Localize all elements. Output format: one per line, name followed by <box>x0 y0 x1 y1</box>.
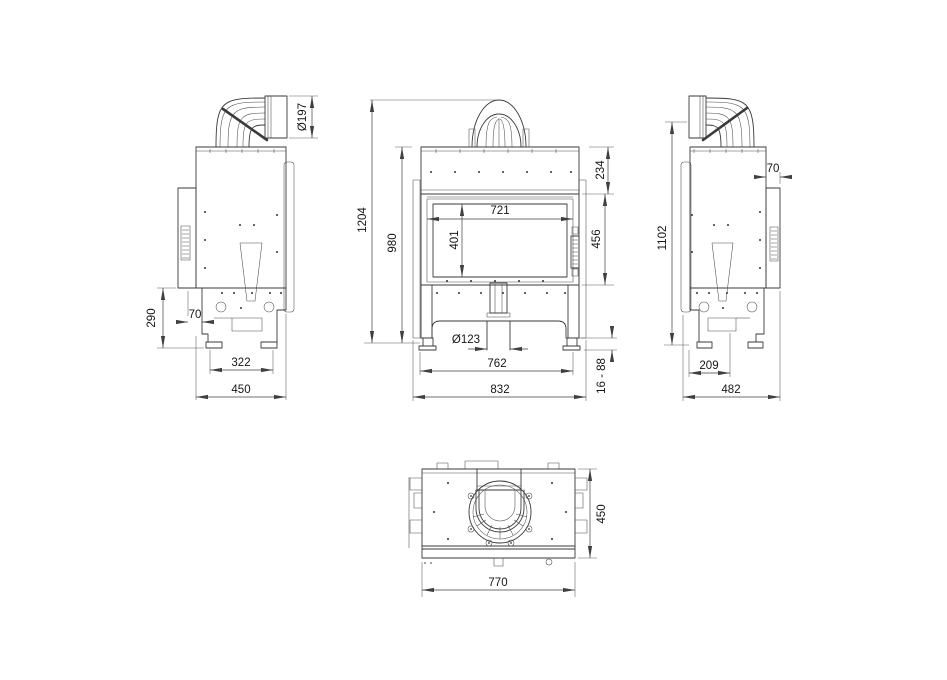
body-side <box>196 147 286 288</box>
screws <box>204 211 282 309</box>
dim-overall-width: 832 <box>490 384 509 396</box>
dim-foot-offset: 209 <box>699 360 718 372</box>
damper-handle <box>494 558 503 566</box>
flue-flange-top <box>468 469 532 546</box>
bolt-hole <box>216 302 226 312</box>
dim-feet-spacing: 322 <box>231 357 250 369</box>
side-view-left: Ø197 290 70 322 450 <box>146 96 318 400</box>
bolt-hole <box>699 302 709 312</box>
knob <box>546 559 552 565</box>
top-tab <box>548 463 559 469</box>
foot <box>206 342 222 348</box>
flue-elbow-right <box>689 96 754 147</box>
flue-flange <box>689 96 706 138</box>
grille <box>770 227 778 261</box>
intake-channel <box>487 321 510 350</box>
top-tab <box>465 461 498 469</box>
front-view: 1204 980 234 456 721 401 Ø123 762 832 16… <box>357 100 617 401</box>
foot <box>697 342 712 348</box>
screws <box>691 211 761 309</box>
ash-drawer <box>708 318 736 331</box>
dim-feet-range: 16 - 88 <box>596 358 608 394</box>
dim-panel-offset-right: 70 <box>767 163 780 175</box>
flue-flange <box>265 96 287 138</box>
technical-drawing: Ø197 290 70 322 450 <box>0 0 947 680</box>
dim-top-width: 770 <box>488 577 507 589</box>
body-top <box>422 469 575 546</box>
baffle-funnel <box>712 243 733 301</box>
dim-door-height: 456 <box>591 229 603 248</box>
top-tab <box>437 463 448 469</box>
dim-top-section-height: 234 <box>595 160 607 180</box>
dim-top-depth: 450 <box>596 504 608 523</box>
screws <box>430 171 572 173</box>
dim-inner-width: 762 <box>487 358 506 370</box>
dim-glass-height: 401 <box>449 230 461 249</box>
top-section <box>421 147 579 194</box>
ash-drawer <box>232 318 262 331</box>
dim-flue-axis-height: 1102 <box>657 226 669 251</box>
dim-intake-diameter: Ø123 <box>452 334 480 346</box>
foot <box>748 342 763 348</box>
dim-depth-left: 450 <box>231 384 250 396</box>
dim-depth-right: 482 <box>721 384 740 396</box>
flue-dome <box>469 100 529 147</box>
drawing-canvas: Ø197 290 70 322 450 <box>0 0 947 680</box>
screws <box>424 482 567 564</box>
air-intake-pipe <box>487 283 510 317</box>
side-view-right: 70 1102 209 482 <box>657 96 792 401</box>
rear-shield <box>681 162 691 312</box>
side-strip <box>413 180 420 338</box>
baffle-funnel <box>240 243 262 301</box>
dim-base-height: 290 <box>146 308 158 327</box>
top-view: 450 770 <box>409 461 608 597</box>
dim-glass-width: 721 <box>490 205 509 217</box>
screws <box>436 292 566 294</box>
bolt-hole <box>264 302 274 312</box>
screws <box>446 280 544 282</box>
dim-flue-diameter: Ø197 <box>297 103 309 131</box>
foot <box>261 342 277 348</box>
flue-elbow-left <box>216 96 287 147</box>
rear-shield <box>284 162 294 312</box>
adjustable-feet <box>419 338 580 350</box>
dim-panel-offset-left: 70 <box>189 309 202 321</box>
dim-overall-height: 1204 <box>357 207 369 233</box>
bolt-hole <box>747 302 757 312</box>
side-strip <box>579 180 586 338</box>
door-handle <box>571 227 579 276</box>
dim-body-height: 980 <box>387 233 399 252</box>
grille <box>181 226 190 260</box>
body-side <box>690 147 766 288</box>
